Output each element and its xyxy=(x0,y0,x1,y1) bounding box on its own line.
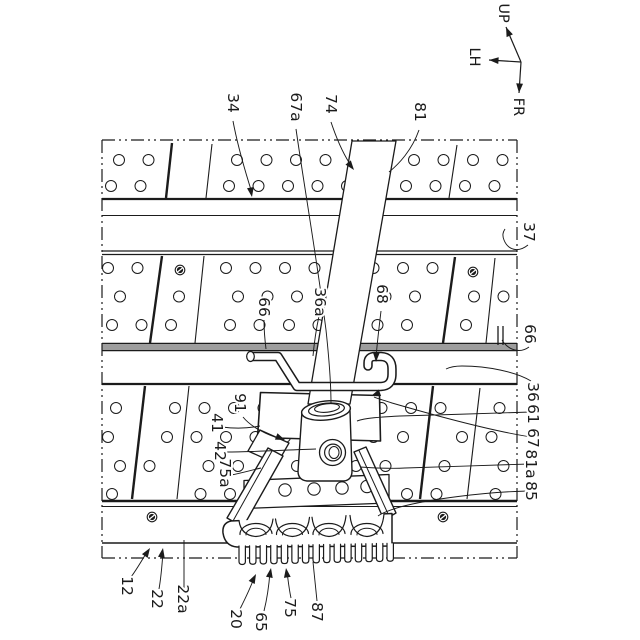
panel-hole xyxy=(144,461,155,472)
board-seam xyxy=(443,257,455,343)
panel-hole xyxy=(402,489,413,500)
panel-hole xyxy=(320,155,331,166)
panel-hole xyxy=(430,181,441,192)
panel-hole xyxy=(199,403,210,414)
panel-hole xyxy=(469,291,480,302)
leader-arrowhead xyxy=(489,57,499,64)
axis-label-FR: FR xyxy=(510,98,526,116)
panel-hole xyxy=(174,291,185,302)
panel-hole xyxy=(191,432,202,443)
board-seam xyxy=(467,388,480,499)
panel-hole xyxy=(107,489,118,500)
ref-label-22a: 22a xyxy=(174,584,192,613)
ref-label-74: 74 xyxy=(322,94,340,114)
ref-label-87: 87 xyxy=(308,602,326,622)
tooth xyxy=(302,545,308,563)
tooth xyxy=(260,546,266,564)
leader-87 xyxy=(313,562,317,601)
leader-arrowhead xyxy=(506,27,513,37)
crossbar-hole xyxy=(279,484,291,496)
panel-hole xyxy=(398,432,409,443)
clamp-mechanism xyxy=(223,141,396,565)
panel-hole xyxy=(103,432,114,443)
panel-hole xyxy=(438,155,449,166)
crossbar-hole xyxy=(308,483,320,495)
leader-arrowhead xyxy=(142,548,150,558)
ref-label-41: 41 xyxy=(208,413,226,433)
panel-hole xyxy=(401,181,412,192)
ref-label-75a: 75a xyxy=(216,458,234,487)
ref-label-67a: 67a xyxy=(287,92,305,121)
panel-hole xyxy=(292,291,303,302)
ref-label-81a: 81a xyxy=(522,449,540,478)
tooth xyxy=(376,544,382,562)
board-seam xyxy=(132,386,145,499)
panel-hole xyxy=(402,320,413,331)
ref-label-37: 37 xyxy=(520,222,538,242)
panel-hole xyxy=(254,320,265,331)
panel-hole xyxy=(498,461,509,472)
panel-hole xyxy=(225,489,236,500)
tooth xyxy=(281,545,287,563)
rod-end-cap xyxy=(247,352,255,362)
leader-36 xyxy=(446,366,531,381)
panel-hole xyxy=(490,489,501,500)
panel-hole xyxy=(136,320,147,331)
figure-page: 3467a7481376636616781a856636a6891414275a… xyxy=(0,0,640,640)
panel-hole xyxy=(111,403,122,414)
ref-label-36a: 36a xyxy=(311,287,329,316)
board-seam xyxy=(195,256,204,343)
panel-hole xyxy=(380,461,391,472)
rail-bar xyxy=(102,345,517,350)
tooth xyxy=(239,546,245,565)
panel-hole xyxy=(107,320,118,331)
panel-hole xyxy=(261,155,272,166)
panel-hole xyxy=(225,320,236,331)
panel-hole xyxy=(309,263,320,274)
ref-label-20: 20 xyxy=(227,609,245,629)
panel-hole xyxy=(468,155,479,166)
ref-label-12: 12 xyxy=(118,576,136,596)
panel-hole xyxy=(114,155,125,166)
panel-hole xyxy=(498,291,509,302)
tooth xyxy=(313,545,319,563)
pipe xyxy=(308,141,396,404)
board-seam xyxy=(206,144,212,198)
tooth xyxy=(345,544,351,562)
panel-hole xyxy=(106,181,117,192)
panel-hole xyxy=(103,263,114,274)
ref-label-22: 22 xyxy=(148,589,166,609)
tooth xyxy=(355,544,361,562)
panel-hole xyxy=(233,291,244,302)
panel-hole xyxy=(143,155,154,166)
panel-hole xyxy=(461,320,472,331)
ref-label-85: 85 xyxy=(522,481,540,501)
panel-hole xyxy=(435,403,446,414)
ref-label-91: 91 xyxy=(231,393,249,413)
ref-label-75: 75 xyxy=(281,598,299,618)
ref-label-61: 61 xyxy=(524,404,542,424)
leader-arrowhead xyxy=(249,574,256,584)
panel-hole xyxy=(312,181,323,192)
panel-hole xyxy=(135,181,146,192)
ref-label-68: 68 xyxy=(373,284,391,304)
board-seam xyxy=(166,143,172,198)
leader-41 xyxy=(222,426,260,428)
panel-hole xyxy=(224,181,235,192)
panel-hole xyxy=(372,320,383,331)
axis-label-UP: UP xyxy=(495,3,511,23)
crossbar-hole xyxy=(336,482,348,494)
panel-hole xyxy=(427,263,438,274)
panel-hole xyxy=(409,155,420,166)
ref-label-67: 67 xyxy=(524,428,542,448)
panel-hole xyxy=(250,263,261,274)
tooth xyxy=(387,543,393,561)
tooth xyxy=(324,544,330,562)
panel-hole xyxy=(457,432,468,443)
panel-hole xyxy=(284,320,295,331)
leader-67 xyxy=(374,397,531,437)
leader-arrowhead xyxy=(158,548,165,558)
axis-label-LH: LH xyxy=(466,48,482,67)
panel-hole xyxy=(115,291,126,302)
panel-hole xyxy=(162,432,173,443)
ref-label-81: 81 xyxy=(411,102,429,122)
panel-hole xyxy=(410,291,421,302)
leader-arrowhead xyxy=(516,83,523,93)
panel-hole xyxy=(494,403,505,414)
leader-65 xyxy=(264,572,270,611)
ref-label-66: 66 xyxy=(521,324,539,344)
panel-hole xyxy=(221,263,232,274)
board-seam xyxy=(150,256,162,343)
tooth xyxy=(271,545,277,563)
panel-hole xyxy=(460,181,471,192)
panel-hole xyxy=(431,489,442,500)
panel-hole xyxy=(203,461,214,472)
panel-hole xyxy=(280,263,291,274)
leader-20 xyxy=(240,578,254,609)
tooth xyxy=(250,546,256,564)
ref-label-66: 66 xyxy=(255,297,273,317)
leader-85 xyxy=(378,491,528,516)
panel-hole xyxy=(195,489,206,500)
panel-hole xyxy=(166,320,177,331)
panel-hole xyxy=(253,181,264,192)
panel-hole xyxy=(497,155,508,166)
tooth xyxy=(334,544,340,562)
ref-label-36: 36 xyxy=(524,382,542,402)
board-seam xyxy=(177,386,189,499)
panel-hole xyxy=(132,263,143,274)
board-seam xyxy=(420,386,433,499)
tooth xyxy=(292,545,298,563)
panel-hole xyxy=(115,461,126,472)
ref-label-34: 34 xyxy=(224,93,242,113)
board-seam xyxy=(449,145,457,198)
panel-hole xyxy=(439,461,450,472)
ref-label-65: 65 xyxy=(252,612,270,632)
leader-arrowhead xyxy=(247,187,254,197)
panel-hole xyxy=(489,181,500,192)
tooth xyxy=(366,544,372,562)
panel-hole xyxy=(398,263,409,274)
leader-arrowhead xyxy=(266,568,273,578)
board-seam xyxy=(486,258,495,343)
panel-hole xyxy=(486,432,497,443)
panel-hole xyxy=(170,403,181,414)
figure-canvas: 3467a7481376636616781a856636a6891414275a… xyxy=(0,0,640,640)
leader-arrowhead xyxy=(284,568,291,578)
panel-hole xyxy=(283,181,294,192)
